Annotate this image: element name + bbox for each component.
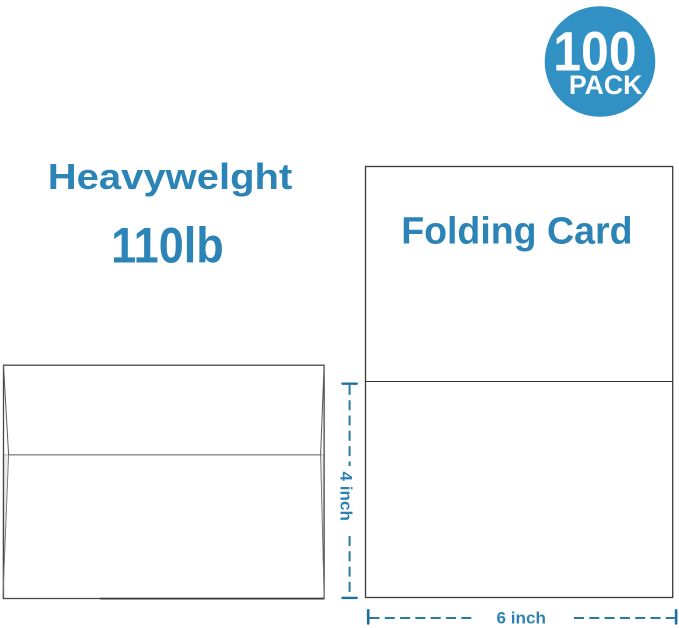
svg-text:110lb: 110lb — [111, 217, 224, 273]
svg-text:6 inch: 6 inch — [497, 608, 546, 627]
svg-text:PACK: PACK — [569, 70, 642, 100]
svg-text:4 inch: 4 inch — [337, 472, 356, 521]
svg-text:Folding Card: Folding Card — [401, 209, 632, 251]
svg-text:Heavywelght: Heavywelght — [48, 156, 292, 197]
